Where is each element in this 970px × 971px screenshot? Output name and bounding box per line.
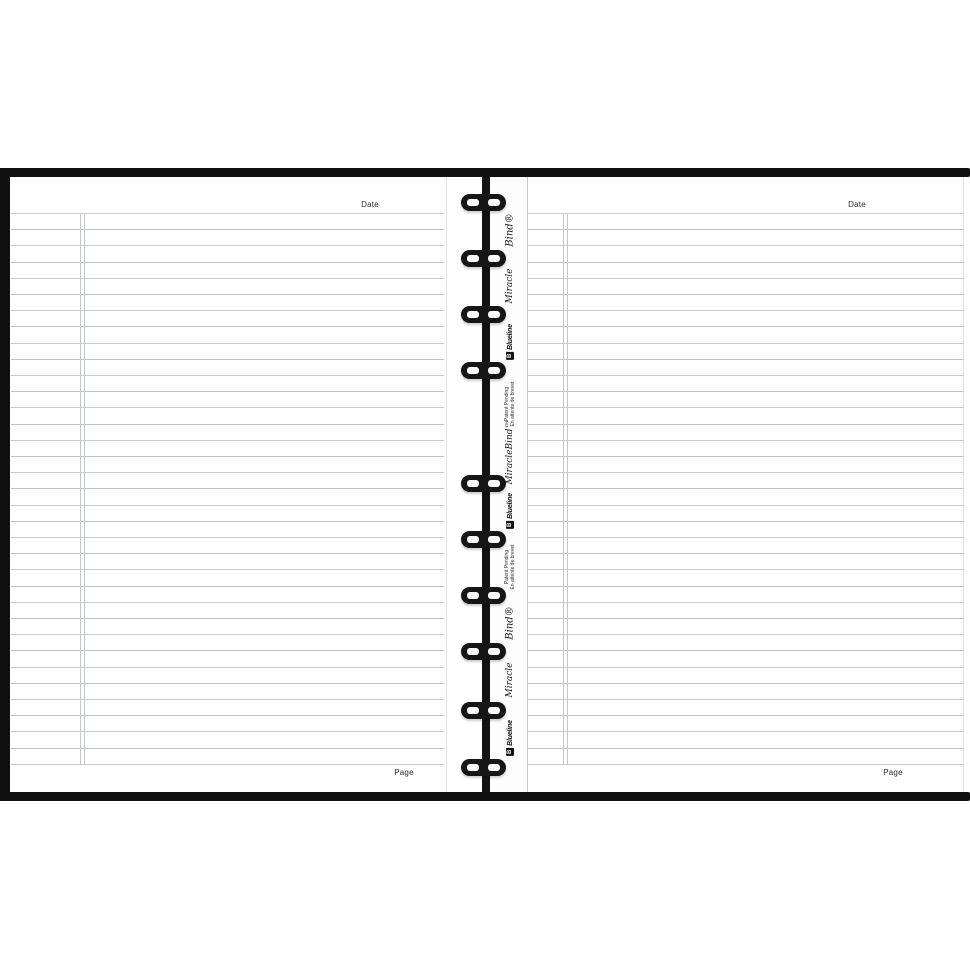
date-label-left: Date: [340, 200, 400, 209]
ruled-line: [11, 456, 444, 457]
ruled-line: [11, 326, 444, 327]
ruled-line: [528, 294, 964, 295]
margin-line: [563, 213, 564, 765]
ruled-line: [528, 505, 964, 506]
ruled-line: [528, 569, 964, 570]
ruled-line: [11, 715, 444, 716]
cover-left-edge: [0, 168, 10, 801]
ruled-line: [528, 391, 964, 392]
spine-brand-text: Bind®: [505, 213, 516, 246]
ruled-line: [11, 764, 444, 765]
ruled-line: [528, 634, 964, 635]
ring-highlight: [488, 764, 500, 771]
ruled-line: [11, 537, 444, 538]
blueline-logo-text: Blueline: [507, 720, 514, 746]
binder-ring: [461, 306, 506, 323]
ring-highlight: [467, 592, 479, 599]
blueline-logo: BBlueline: [506, 324, 514, 360]
ruled-line: [528, 602, 964, 603]
ruled-line: [11, 634, 444, 635]
ruled-line: [11, 569, 444, 570]
ruled-line: [11, 553, 444, 554]
ruled-line: [528, 748, 964, 749]
ruled-line: [11, 375, 444, 376]
binder-ring: [461, 194, 506, 211]
blueline-logo-icon: B: [506, 521, 514, 529]
margin-line: [567, 213, 568, 765]
ring-highlight: [488, 536, 500, 543]
ruled-line: [528, 262, 964, 263]
ring-highlight: [467, 199, 479, 206]
ring-highlight: [467, 480, 479, 487]
ruled-line: [528, 278, 964, 279]
ruled-line: [11, 650, 444, 651]
margin-line: [84, 213, 85, 765]
binder-ring: [461, 531, 506, 548]
ruled-line: [11, 359, 444, 360]
ruled-line: [11, 618, 444, 619]
ruled-line: [528, 667, 964, 668]
ring-highlight: [488, 592, 500, 599]
binder-ring: [461, 250, 506, 267]
binder-ring: [461, 702, 506, 719]
blueline-logo-text: Blueline: [507, 493, 514, 519]
ruled-line: [11, 748, 444, 749]
ruled-line: [528, 472, 964, 473]
spine-brand-text: MiracleBind™: [505, 419, 515, 484]
cover-bottom-edge: [0, 792, 970, 801]
ruled-line: [528, 715, 964, 716]
ruled-line: [11, 472, 444, 473]
right-page: Date Page: [528, 177, 970, 792]
ruled-line: [11, 731, 444, 732]
ruled-line: [528, 699, 964, 700]
ring-highlight: [488, 648, 500, 655]
spine-brand-text: Miracle: [505, 662, 515, 697]
ruled-line: [11, 391, 444, 392]
ring-highlight: [467, 311, 479, 318]
ruled-line: [11, 683, 444, 684]
ruled-line: [11, 521, 444, 522]
blueline-logo: BBlueline: [506, 493, 514, 529]
ruled-line: [528, 359, 964, 360]
ring-highlight: [488, 480, 500, 487]
ruled-line: [11, 602, 444, 603]
date-label-right: Date: [827, 200, 887, 209]
ruled-line: [528, 407, 964, 408]
spine-brand-text: Bind®: [505, 606, 516, 639]
ruled-line: [528, 764, 964, 765]
ruled-line: [528, 488, 964, 489]
ruled-line: [11, 505, 444, 506]
spine-brand-text: Miracle: [505, 268, 515, 303]
ruled-line: [528, 553, 964, 554]
ring-highlight: [488, 255, 500, 262]
blueline-logo-icon: B: [506, 748, 514, 756]
ruled-line: [528, 424, 964, 425]
page-label-left: Page: [374, 768, 434, 777]
ruled-line: [528, 731, 964, 732]
ruled-line: [528, 229, 964, 230]
ruled-line: [528, 213, 964, 214]
ruled-line: [528, 343, 964, 344]
binder-ring: [461, 643, 506, 660]
ruled-line: [528, 618, 964, 619]
ruled-line: [528, 650, 964, 651]
notebook-photo: Date Page Bind®MiracleBBluelinePatent Pe…: [0, 0, 970, 971]
ruled-line: [11, 699, 444, 700]
ruled-line: [11, 343, 444, 344]
ruled-line: [528, 456, 964, 457]
binder-ring: [461, 362, 506, 379]
binder-ring: [461, 759, 506, 776]
ruled-line: [11, 407, 444, 408]
ruled-line: [528, 375, 964, 376]
ruled-line: [11, 213, 444, 214]
ring-highlight: [467, 764, 479, 771]
ruled-line: [11, 310, 444, 311]
ruled-line: [11, 667, 444, 668]
ring-highlight: [488, 311, 500, 318]
ruled-line: [528, 521, 964, 522]
ruled-line: [528, 326, 964, 327]
ring-highlight: [488, 367, 500, 374]
blueline-logo-text: Blueline: [507, 324, 514, 350]
ring-highlight: [467, 536, 479, 543]
blueline-logo: BBlueline: [506, 720, 514, 756]
ring-highlight: [488, 707, 500, 714]
ruled-line: [11, 278, 444, 279]
ring-highlight: [467, 255, 479, 262]
ring-highlight: [467, 648, 479, 655]
cover-top-edge: [0, 168, 970, 177]
margin-line: [80, 213, 81, 765]
ruled-line: [11, 229, 444, 230]
left-page: Date Page: [10, 177, 447, 792]
ruled-line: [11, 488, 444, 489]
ruled-line: [11, 294, 444, 295]
ruled-line: [11, 440, 444, 441]
ruled-line: [528, 440, 964, 441]
ring-highlight: [488, 199, 500, 206]
ruled-line: [528, 310, 964, 311]
ruled-line: [528, 537, 964, 538]
binder-ring: [461, 587, 506, 604]
binder-ring: [461, 475, 506, 492]
ring-highlight: [467, 367, 479, 374]
page-label-right: Page: [863, 768, 923, 777]
ruled-line: [11, 245, 444, 246]
ruled-line: [11, 586, 444, 587]
ring-highlight: [467, 707, 479, 714]
patent-pending-text: Patent PendingEn attente de brevet: [504, 544, 516, 589]
ruled-line: [11, 262, 444, 263]
ruled-line: [528, 683, 964, 684]
blueline-logo-icon: B: [506, 352, 514, 360]
ruled-line: [528, 586, 964, 587]
ruled-line: [11, 424, 444, 425]
patent-line-fr: En attente de brevet: [510, 544, 516, 589]
ruled-line: [528, 245, 964, 246]
